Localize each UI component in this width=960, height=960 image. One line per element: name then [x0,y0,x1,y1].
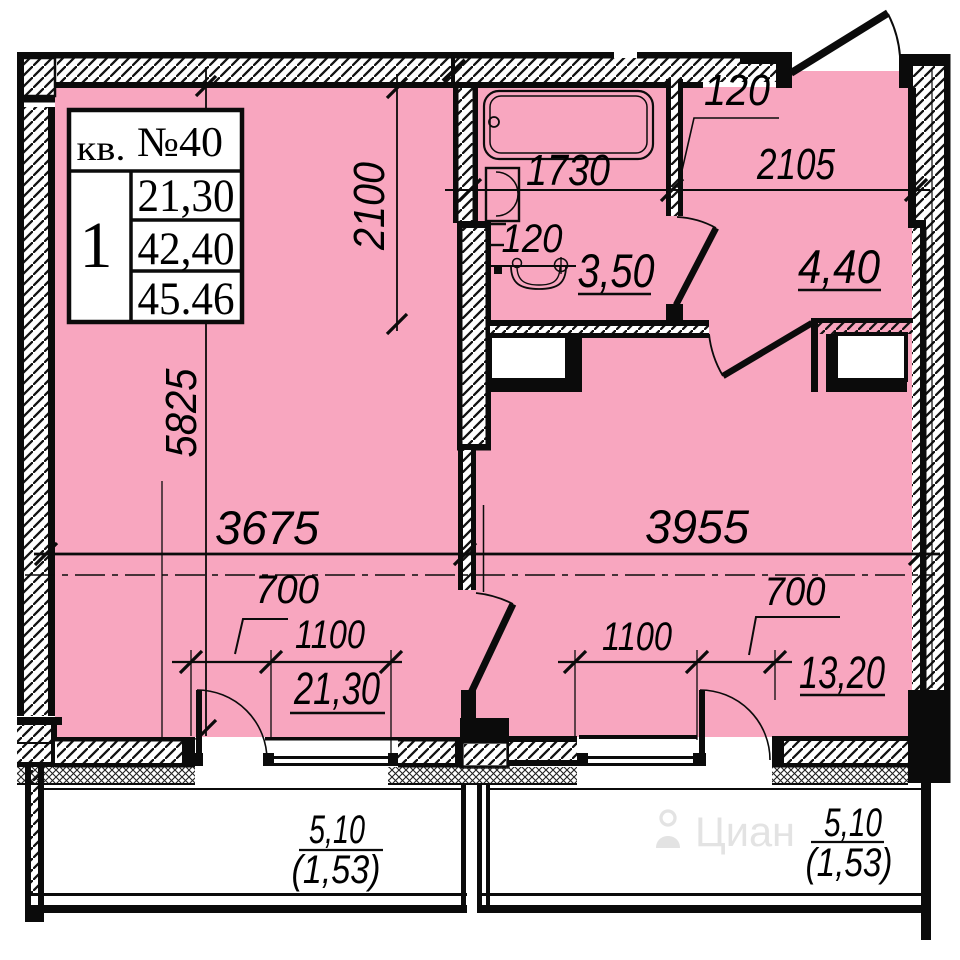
svg-text:42,40: 42,40 [138,223,235,275]
svg-text:21,30: 21,30 [293,663,380,714]
svg-text:700: 700 [765,570,826,614]
svg-text:1730: 1730 [526,146,610,195]
svg-text:2105: 2105 [756,140,835,189]
svg-text:45.46: 45.46 [138,273,235,325]
svg-text:2100: 2100 [345,162,394,251]
svg-text:№40: №40 [137,120,223,166]
svg-text:4,40: 4,40 [798,240,880,293]
svg-text:3955: 3955 [645,500,750,553]
svg-text:кв.: кв. [77,128,126,168]
svg-text:13,20: 13,20 [799,647,885,698]
svg-text:5,10: 5,10 [824,801,882,845]
svg-text:1100: 1100 [295,613,365,657]
svg-text:21,30: 21,30 [138,170,235,222]
svg-text:(1,53): (1,53) [292,848,381,892]
svg-text:3,50: 3,50 [578,244,655,297]
svg-text:(1,53): (1,53) [806,841,893,885]
svg-text:120: 120 [704,66,770,115]
svg-text:1: 1 [80,209,113,282]
svg-text:120: 120 [502,217,563,261]
svg-text:1100: 1100 [602,615,672,659]
svg-text:5825: 5825 [157,368,206,457]
svg-text:5,10: 5,10 [309,808,365,852]
svg-text:Циан: Циан [695,808,795,855]
svg-text:700: 700 [255,568,319,612]
svg-text:3675: 3675 [215,501,320,554]
